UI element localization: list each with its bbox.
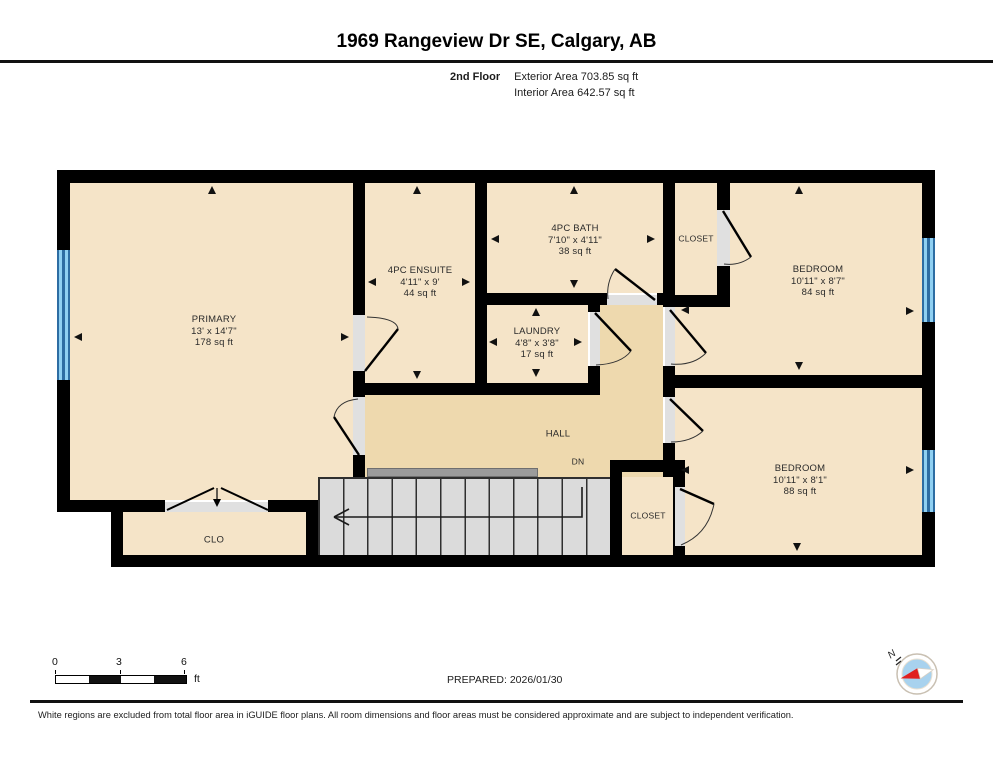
scale-unit: ft — [194, 673, 200, 685]
room-name: LAUNDRY — [514, 326, 561, 338]
wall — [610, 472, 622, 567]
window — [922, 450, 935, 512]
dimension-arrow-icon — [795, 186, 803, 194]
dimension-arrow-icon — [413, 371, 421, 379]
door-opening — [675, 487, 685, 546]
dimension-arrow-icon — [413, 186, 421, 194]
door-opening — [665, 307, 675, 366]
disclaimer-text: White regions are excluded from total fl… — [38, 710, 794, 720]
room-name: BEDROOM — [791, 264, 845, 276]
room-label-closet-top: CLOSET — [678, 233, 713, 245]
dimension-arrow-icon — [491, 235, 499, 243]
room-dims: 7'10" x 4'11" — [548, 234, 602, 246]
dimension-arrow-icon — [647, 235, 655, 243]
room-area: 17 sq ft — [514, 349, 561, 361]
wall — [610, 460, 685, 472]
stair-railing — [367, 468, 538, 477]
header-divider — [0, 60, 993, 63]
room-label-bath: 4PC BATH 7'10" x 4'11" 38 sq ft — [548, 223, 602, 258]
room-area: 44 sq ft — [388, 288, 453, 300]
room-label-laundry: LAUNDRY 4'8" x 3'8" 17 sq ft — [514, 326, 561, 361]
room-label-bedroom-bottom: BEDROOM 10'11" x 8'1" 88 sq ft — [773, 463, 827, 498]
compass-icon: N — [886, 644, 944, 702]
wall — [663, 183, 675, 307]
dimension-arrow-icon — [368, 278, 376, 286]
compass-n-arrow — [896, 657, 901, 665]
window — [922, 238, 935, 322]
room-label-clo: CLO — [204, 534, 224, 546]
wall — [57, 170, 935, 183]
prepared-date: PREPARED: 2026/01/30 — [447, 674, 562, 686]
scale-tick-label: 6 — [181, 656, 187, 668]
dimension-arrow-icon — [793, 543, 801, 551]
dn-label: DN — [572, 456, 585, 468]
scale-segment — [121, 676, 154, 683]
room-name: CLOSET — [630, 510, 665, 522]
door-opening — [607, 295, 657, 305]
room-dims: 10'11" x 8'7" — [791, 275, 845, 287]
wall — [588, 293, 600, 312]
dimension-arrow-icon — [74, 333, 82, 341]
dimension-arrow-icon — [681, 466, 689, 474]
wall — [353, 183, 365, 315]
dimension-arrow-icon — [906, 466, 914, 474]
wall — [475, 183, 487, 395]
door-opening — [590, 312, 600, 366]
compass-n-label: N — [886, 648, 899, 662]
scale-segment — [89, 676, 122, 683]
scale-tick — [184, 670, 185, 674]
door-opening — [353, 315, 365, 371]
dimension-arrow-icon — [208, 186, 216, 194]
room-name: HALL — [546, 428, 571, 440]
room-area: 84 sq ft — [791, 287, 845, 299]
wall — [663, 295, 730, 307]
dimension-arrow-icon — [341, 333, 349, 341]
room-name: 4PC BATH — [548, 223, 602, 235]
wall — [111, 512, 123, 567]
room-dims: 4'8" x 3'8" — [514, 337, 561, 349]
footer-divider — [30, 700, 963, 703]
room-name: PRIMARY — [191, 314, 237, 326]
room-hall-strip — [600, 305, 663, 395]
wall — [353, 455, 365, 477]
room-name: BEDROOM — [773, 463, 827, 475]
dimension-arrow-icon — [681, 306, 689, 314]
door-opening — [165, 502, 268, 512]
stairs-dn-label: DN — [572, 456, 585, 468]
room-dims: 10'11" x 8'1" — [773, 474, 827, 486]
door-opening — [717, 210, 730, 266]
floorplan-page: 1969 Rangeview Dr SE, Calgary, AB 2nd Fl… — [0, 0, 993, 768]
room-dims: 4'11" x 9' — [388, 276, 453, 288]
wall — [306, 500, 318, 567]
dimension-arrow-icon — [795, 362, 803, 370]
room-label-closet-stairs: CLOSET — [630, 510, 665, 522]
scale-tick-label: 3 — [116, 656, 122, 668]
scale-tick — [120, 670, 121, 674]
wall — [663, 366, 675, 397]
floor-info: 2nd Floor Exterior Area 703.85 sq ft Int… — [450, 69, 638, 101]
dimension-arrow-icon — [462, 278, 470, 286]
room-label-primary: PRIMARY 13' x 14'7" 178 sq ft — [191, 314, 237, 349]
dimension-arrow-icon — [574, 338, 582, 346]
room-label-hall: HALL — [546, 428, 571, 440]
wall — [717, 183, 730, 210]
scale-bar: 0 3 6 ft — [55, 656, 215, 692]
room-area: 38 sq ft — [548, 246, 602, 258]
dimension-arrow-icon — [570, 186, 578, 194]
scale-segment — [56, 676, 89, 683]
room-area: 178 sq ft — [191, 337, 237, 349]
dimension-arrow-icon — [570, 280, 578, 288]
room-dims: 13' x 14'7" — [191, 325, 237, 337]
door-opening — [353, 397, 365, 455]
page-title: 1969 Rangeview Dr SE, Calgary, AB — [0, 31, 993, 53]
room-name: CLO — [204, 534, 224, 546]
dimension-arrow-icon — [532, 369, 540, 377]
dimension-arrow-icon — [532, 308, 540, 316]
room-label-ensuite: 4PC ENSUITE 4'11" x 9' 44 sq ft — [388, 265, 453, 300]
interior-area: Interior Area 642.57 sq ft — [514, 85, 638, 101]
scale-tick — [55, 670, 56, 674]
wall — [353, 383, 600, 395]
wall — [57, 500, 165, 512]
room-name: CLOSET — [678, 233, 713, 245]
room-name: 4PC ENSUITE — [388, 265, 453, 277]
exterior-area: Exterior Area 703.85 sq ft — [514, 69, 638, 85]
dimension-arrow-icon — [906, 307, 914, 315]
wall — [675, 375, 935, 388]
dimension-arrow-icon — [489, 338, 497, 346]
scale-tick-label: 0 — [52, 656, 58, 668]
floor-label: 2nd Floor — [450, 69, 500, 85]
window — [57, 250, 70, 380]
room-label-bedroom-top: BEDROOM 10'11" x 8'7" 84 sq ft — [791, 264, 845, 299]
stairs — [318, 477, 610, 555]
scale-bar-segments — [55, 675, 187, 684]
wall — [111, 555, 935, 567]
scale-segment — [154, 676, 187, 683]
door-opening — [665, 397, 675, 443]
room-area: 88 sq ft — [773, 486, 827, 498]
